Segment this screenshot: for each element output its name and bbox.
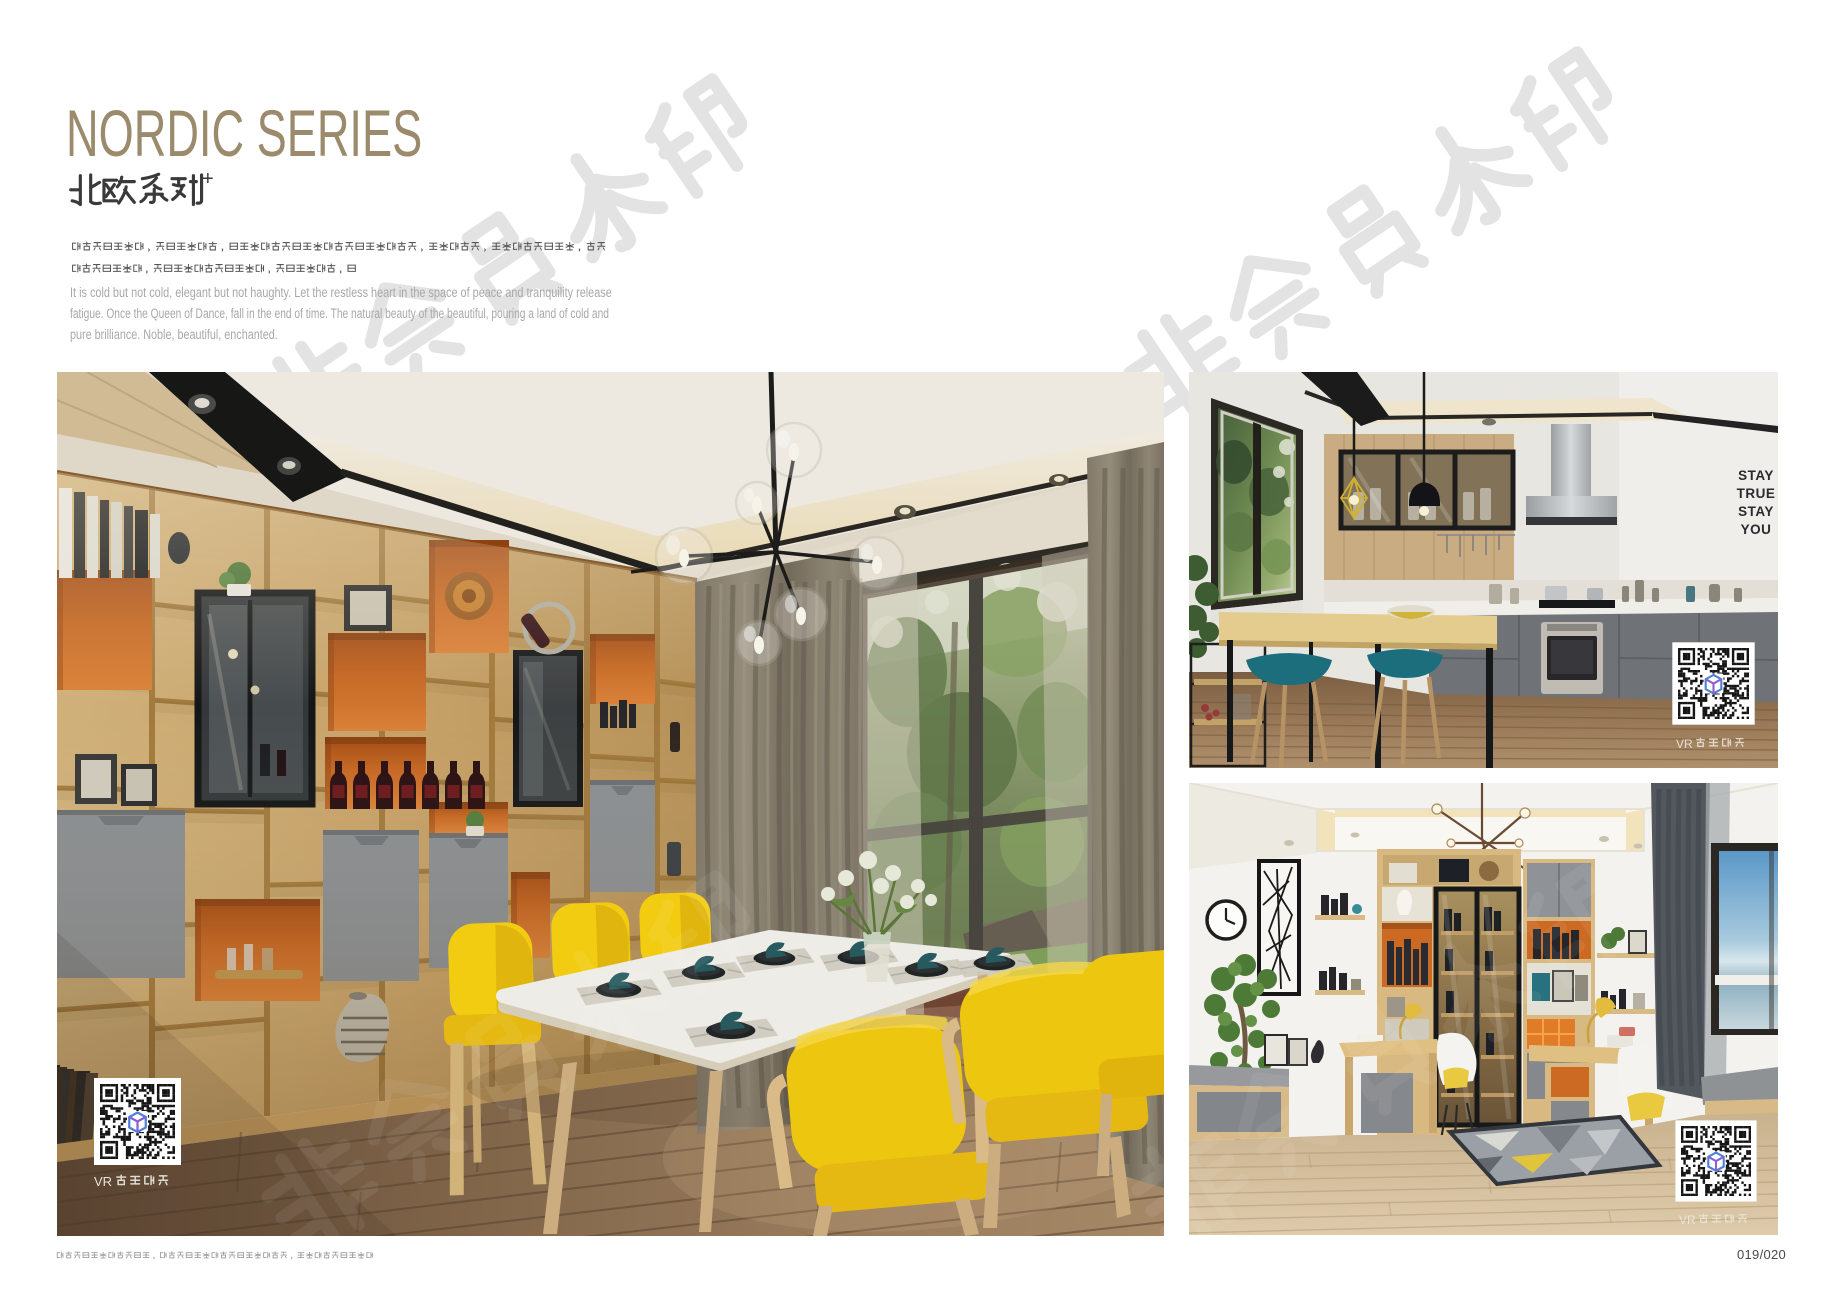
svg-text:VR: VR [94,1174,112,1189]
svg-text:VR: VR [1676,737,1693,751]
svg-text:VR: VR [1679,1213,1696,1227]
